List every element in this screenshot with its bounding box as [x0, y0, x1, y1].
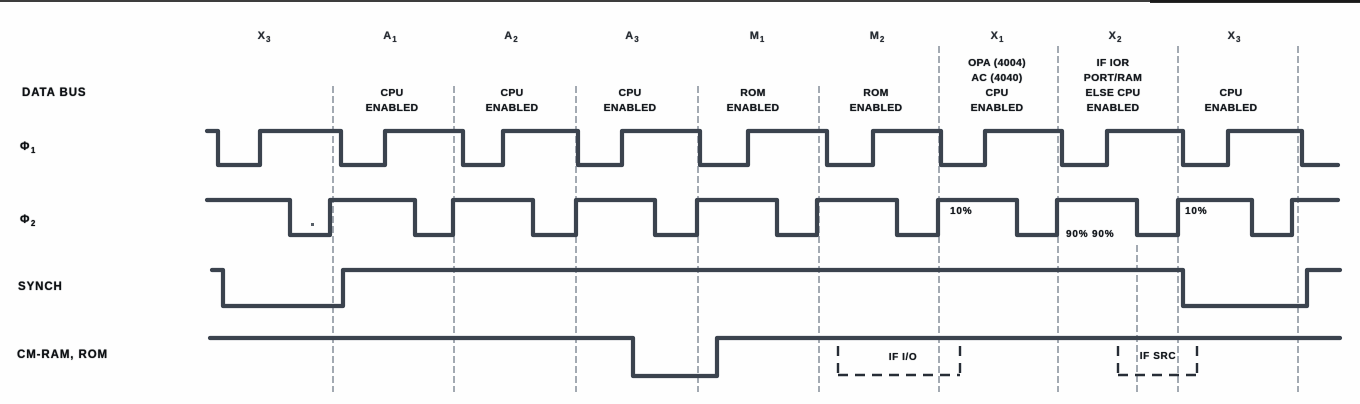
- phase-label-subscript: 3: [266, 35, 271, 44]
- phase-label-base: A: [504, 30, 512, 42]
- signal-label-base: Φ: [20, 141, 30, 153]
- labels-layer: IF I/OIF SRCX3A1A2A3M1M2X1X2X3DATA BUSΦ1…: [0, 0, 1360, 404]
- phase-label-base: X: [1228, 30, 1236, 42]
- phase-label-subscript: 3: [634, 35, 639, 44]
- signal-label-subscript: 2: [31, 219, 36, 228]
- signal-label-subscript: 1: [31, 146, 36, 155]
- data-bus-label: DATA BUS: [22, 87, 86, 99]
- phase-label-x2: X2: [1109, 30, 1122, 42]
- cm-ram-rom-label: CM-RAM, ROM: [17, 349, 108, 361]
- phase-label-x1: X1: [991, 30, 1004, 42]
- phase-label-base: X: [991, 30, 999, 42]
- phase-label-base: A: [383, 30, 391, 42]
- if-src-window-label: IF SRC: [1140, 351, 1176, 362]
- phase-label-base: X: [1109, 30, 1117, 42]
- phase-label-subscript: 1: [392, 35, 397, 44]
- phase-label-a3: A3: [625, 30, 638, 42]
- phase-label-a2: A2: [504, 30, 517, 42]
- bus-annotation: CPU ENABLED: [604, 86, 657, 116]
- phase-label-subscript: 2: [1117, 35, 1122, 44]
- percent-annotation: 10%: [1185, 206, 1207, 217]
- synch-label: SYNCH: [18, 281, 63, 293]
- timing-diagram: IF I/OIF SRCX3A1A2A3M1M2X1X2X3DATA BUSΦ1…: [0, 0, 1360, 404]
- phase-label-x3: X3: [258, 30, 271, 42]
- phase-label-base: A: [625, 30, 633, 42]
- phase-label-a1: A1: [383, 30, 396, 42]
- phase-label-m1: M1: [750, 30, 765, 42]
- phase-label-subscript: 1: [999, 35, 1004, 44]
- bus-annotation: CPU ENABLED: [366, 86, 419, 116]
- signal-label-base: Φ: [20, 214, 30, 226]
- phase-label-m2: M2: [870, 30, 885, 42]
- percent-annotation: 10%: [950, 206, 972, 217]
- if-i-o-window-label: IF I/O: [889, 352, 918, 363]
- bus-annotation: ROM ENABLED: [727, 86, 780, 116]
- bus-annotation: CPU ENABLED: [1205, 86, 1258, 116]
- phase-label-subscript: 2: [880, 35, 885, 44]
- phi1-label: Φ1: [20, 141, 36, 153]
- bus-annotation: OPA (4004) AC (4040) CPU ENABLED: [968, 56, 1026, 116]
- phase-label-base: M: [870, 30, 880, 42]
- phase-label-subscript: 1: [760, 35, 765, 44]
- bus-annotation: IF IOR PORT/RAM ELSE CPU ENABLED: [1084, 56, 1142, 116]
- bus-annotation: ROM ENABLED: [850, 86, 903, 116]
- phase-label-base: X: [258, 30, 266, 42]
- bus-annotation: CPU ENABLED: [486, 86, 539, 116]
- phase-label-base: M: [750, 30, 760, 42]
- phi2-label: Φ2: [20, 214, 36, 226]
- phase-label-x3: X3: [1228, 30, 1241, 42]
- percent-annotation: 90% 90%: [1066, 229, 1114, 240]
- phase-label-subscript: 3: [1236, 35, 1241, 44]
- phase-label-subscript: 2: [513, 35, 518, 44]
